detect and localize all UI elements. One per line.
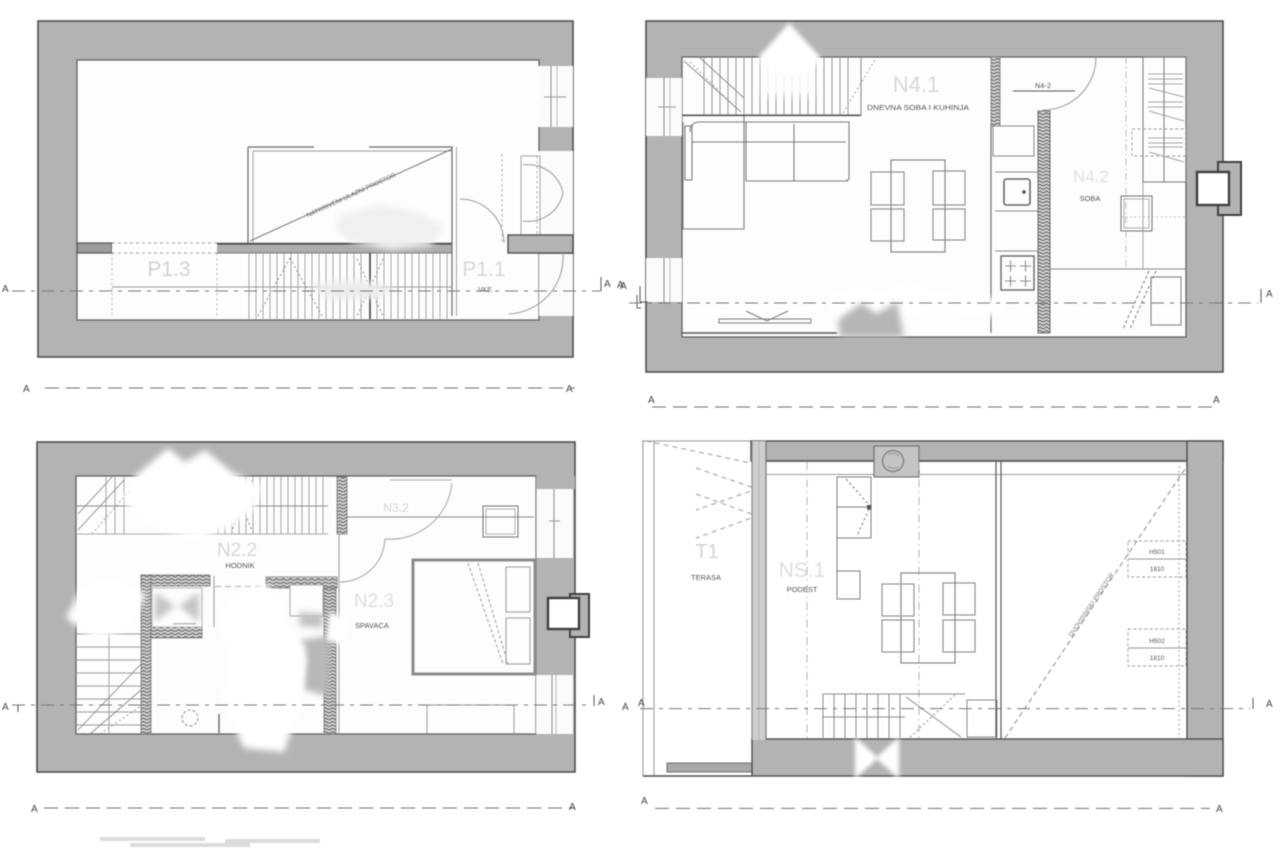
svg-text:A: A (598, 697, 605, 708)
svg-text:N4.1: N4.1 (893, 72, 939, 97)
svg-text:SPAVACA: SPAVACA (355, 621, 389, 630)
svg-text:P1.1: P1.1 (462, 258, 505, 281)
svg-text:A: A (638, 698, 645, 709)
svg-text:A: A (622, 702, 629, 713)
svg-text:A: A (648, 395, 655, 406)
svg-text:A: A (23, 384, 30, 395)
svg-text:N3.2: N3.2 (383, 501, 409, 515)
svg-text:A: A (1213, 395, 1220, 406)
svg-text:HODNIK: HODNIK (225, 561, 254, 570)
svg-text:A: A (604, 279, 611, 290)
svg-text:H501: H501 (1149, 549, 1165, 556)
svg-text:DNEVNA SOBA I KUHINJA: DNEVNA SOBA I KUHINJA (867, 103, 969, 112)
svg-text:T1: T1 (695, 541, 718, 563)
svg-text:1810: 1810 (1150, 566, 1165, 573)
svg-text:N2.2: N2.2 (217, 540, 257, 561)
svg-text:P1.3: P1.3 (147, 258, 190, 281)
svg-text:NS.1: NS.1 (779, 559, 826, 582)
svg-text:H502: H502 (1149, 638, 1165, 645)
svg-text:PODEST: PODEST (787, 585, 818, 594)
svg-text:A: A (1266, 289, 1273, 300)
svg-text:DVOVISINSKI PROSTOR: DVOVISINSKI PROSTOR (1068, 572, 1116, 639)
svg-text:SOBA: SOBA (1080, 194, 1101, 203)
svg-text:A: A (2, 702, 9, 713)
svg-text:N4-2: N4-2 (1035, 81, 1051, 90)
svg-text:A: A (1266, 699, 1273, 710)
svg-text:N2.3: N2.3 (354, 591, 394, 612)
svg-text:A: A (31, 804, 38, 815)
svg-text:A: A (569, 802, 576, 813)
svg-text:A: A (641, 796, 648, 807)
svg-text:1810: 1810 (1150, 655, 1165, 662)
svg-text:A: A (617, 280, 624, 291)
svg-text:N4.2: N4.2 (1073, 167, 1109, 186)
svg-text:A: A (566, 384, 573, 395)
svg-text:TERASA: TERASA (691, 573, 721, 582)
svg-text:A: A (2, 284, 9, 295)
svg-text:A: A (1216, 804, 1223, 815)
